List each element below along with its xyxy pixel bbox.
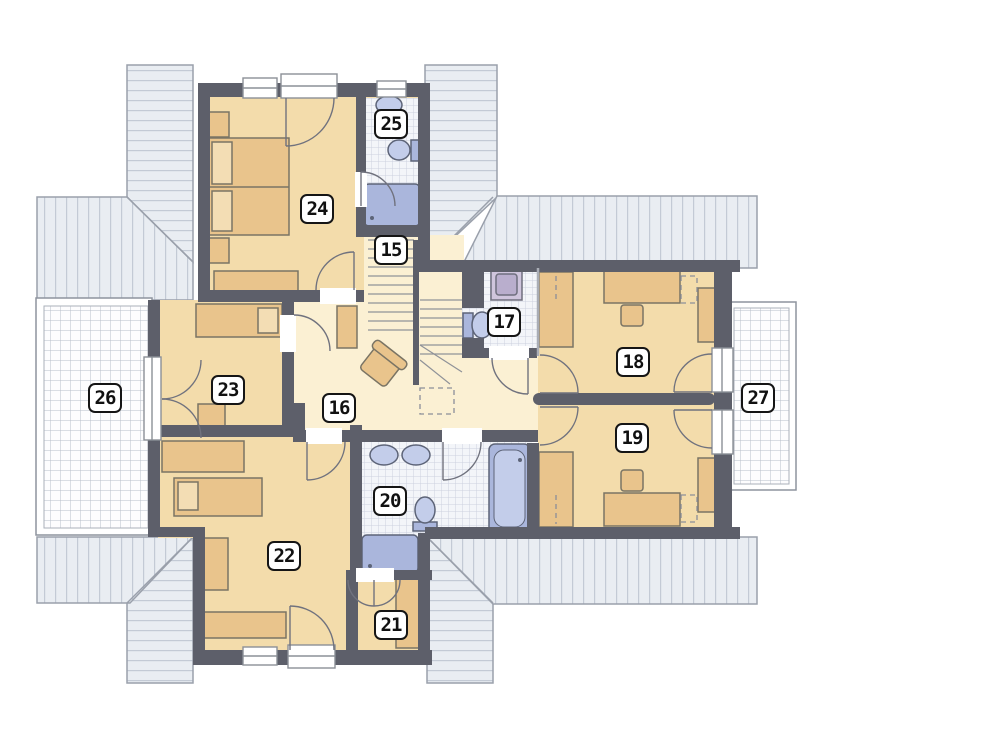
room-label-18: 18 <box>616 347 650 377</box>
wall <box>198 83 210 302</box>
window <box>243 647 277 665</box>
toilet-icon <box>388 140 410 160</box>
room-label-16: 16 <box>322 393 356 423</box>
balcony-door <box>712 410 733 454</box>
room-label-23: 23 <box>211 375 245 405</box>
door-opening <box>489 346 529 360</box>
sink-icon <box>370 445 398 465</box>
door-opening <box>356 568 394 582</box>
pillow-icon <box>178 482 198 510</box>
room-label-17: 17 <box>487 307 521 337</box>
window <box>243 78 277 98</box>
wall <box>193 535 205 665</box>
balcony-grid-floor <box>44 306 148 528</box>
cabinet-icon <box>337 306 357 348</box>
wall <box>530 527 740 539</box>
desk-icon <box>604 493 680 526</box>
door-opening <box>320 288 356 304</box>
wall <box>418 83 430 272</box>
desk-icon <box>604 270 680 303</box>
wall-partition-18-19 <box>533 393 715 405</box>
wall <box>425 527 539 539</box>
nightstand-icon <box>208 112 229 137</box>
wall <box>356 97 366 227</box>
french-window <box>281 74 337 98</box>
wall <box>462 338 484 358</box>
room-label-15: 15 <box>374 235 408 265</box>
wall <box>527 443 539 539</box>
floor-plan-drawing <box>0 0 1000 748</box>
room-label-26: 26 <box>88 383 122 413</box>
cabinet-icon <box>698 288 715 342</box>
nightstand-icon <box>208 238 229 263</box>
room-label-21: 21 <box>374 610 408 640</box>
wall <box>418 533 430 663</box>
wardrobe-icon <box>539 272 573 347</box>
pillow-icon <box>212 142 232 184</box>
wall <box>462 263 484 308</box>
chair-icon <box>621 305 643 326</box>
pillow-icon <box>258 308 278 333</box>
roof-upper-right <box>461 196 757 268</box>
sink-icon <box>402 445 430 465</box>
balcony-door <box>712 348 733 392</box>
wardrobe-icon <box>200 612 286 638</box>
door-opening <box>280 315 296 352</box>
balcony-door <box>144 357 161 440</box>
cabinet-icon <box>698 458 715 512</box>
room-label-22: 22 <box>267 541 301 571</box>
room-label-27: 27 <box>741 383 775 413</box>
room-label-24: 24 <box>300 194 334 224</box>
door-opening <box>442 428 482 444</box>
wall <box>148 425 294 437</box>
wall <box>350 425 362 580</box>
balcony-26 <box>36 298 152 535</box>
toilet-icon <box>415 497 435 523</box>
room-label-20: 20 <box>373 486 407 516</box>
desk-icon <box>202 538 228 590</box>
pillow-icon <box>212 191 232 231</box>
floor-plan-canvas: 15 16 17 18 19 20 21 22 23 24 25 26 27 <box>0 0 1000 748</box>
balcony-door <box>288 645 335 668</box>
door-opening <box>306 428 342 444</box>
wall <box>714 260 732 538</box>
wardrobe-icon <box>162 441 244 472</box>
chair-icon <box>621 470 643 491</box>
room-label-19: 19 <box>615 423 649 453</box>
room-label-25: 25 <box>374 109 408 139</box>
window <box>377 81 406 97</box>
